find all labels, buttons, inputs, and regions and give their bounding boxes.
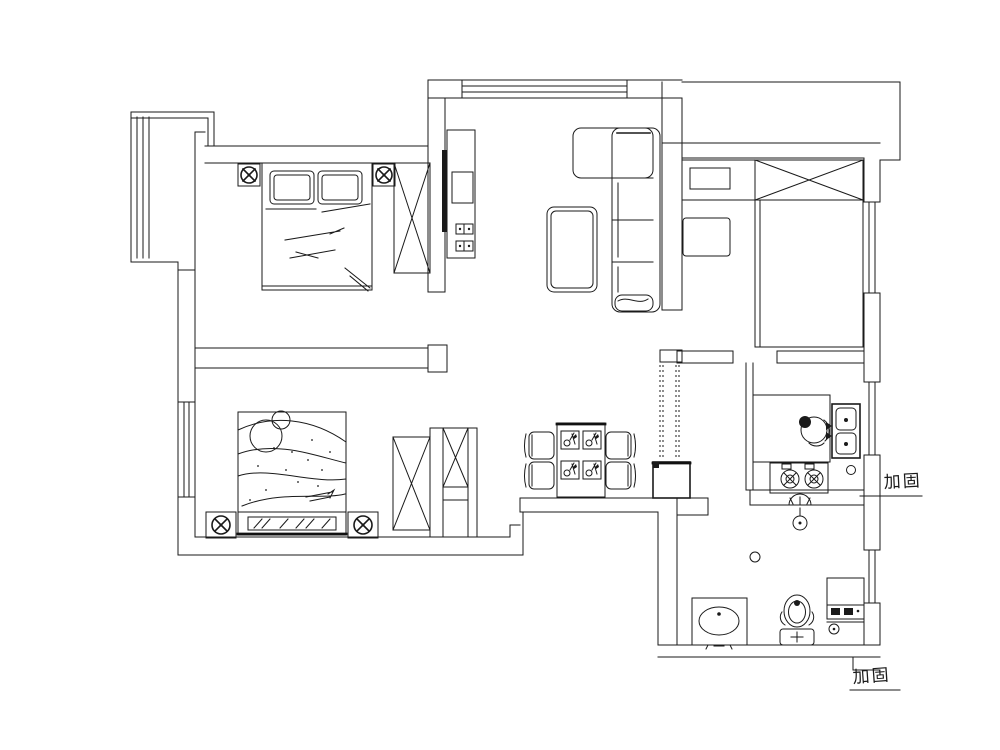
living-room — [442, 128, 660, 312]
column — [653, 462, 690, 498]
walls — [131, 80, 900, 670]
cabinet — [682, 160, 755, 200]
dining-chair — [525, 432, 555, 459]
headboard — [238, 512, 346, 535]
washing-machine — [827, 578, 864, 622]
dining-table — [557, 423, 605, 497]
shower-icon — [789, 494, 811, 530]
place-settings — [561, 431, 601, 479]
bay-window-master — [131, 112, 205, 270]
gas-stove — [770, 463, 828, 493]
wall-bedroom3-north — [662, 143, 880, 158]
master-bedroom — [238, 163, 430, 291]
floor-plan-page: { "drawing": { "type": "apartment-floor-… — [0, 0, 1000, 750]
wall-living-east — [662, 82, 682, 310]
wall-bath-south — [658, 645, 880, 657]
place-setting — [561, 461, 579, 479]
wall-niche-east — [443, 428, 477, 537]
wall-bottom — [178, 537, 523, 555]
place-setting — [583, 461, 601, 479]
wall-door-jamb — [428, 345, 447, 372]
lamp-icon — [354, 516, 372, 534]
washbasin — [692, 598, 747, 649]
wardrobe — [393, 437, 430, 530]
wardrobe — [394, 163, 430, 273]
pillow — [318, 171, 362, 204]
sofa-armrest — [615, 295, 653, 311]
toilet — [780, 595, 814, 645]
media-device — [456, 224, 473, 234]
removed-wall-dashes — [660, 365, 679, 460]
sofa — [573, 128, 660, 312]
wall-cap-dining — [660, 350, 682, 362]
bathroom — [692, 494, 864, 649]
wall-bath-north-stub — [677, 498, 708, 515]
bedspread-dots — [249, 439, 331, 501]
wardrobe — [755, 160, 863, 200]
window-bedroom3-east — [864, 202, 880, 293]
wall-kitchen-north-right — [777, 351, 864, 363]
window-kitchen-east — [864, 382, 880, 455]
gas-valve-icon — [847, 466, 856, 475]
window-bath-east — [864, 550, 880, 603]
bed — [238, 411, 346, 512]
lamp-icon — [241, 167, 257, 183]
sink — [826, 404, 860, 458]
wall-bath-west — [658, 498, 677, 645]
kitchen — [753, 395, 860, 493]
double-bed — [262, 163, 372, 291]
pillow — [270, 171, 314, 204]
wall-kitchen-west — [746, 363, 753, 490]
bedroom3 — [682, 160, 863, 347]
av-equipment — [452, 172, 473, 203]
floor-plan-drawing: 加固 加固 — [0, 0, 1000, 750]
media-device — [456, 241, 473, 251]
tv-cabinet — [442, 130, 475, 258]
dining-chair — [606, 462, 636, 489]
dining-chair — [606, 432, 636, 459]
window-living-north — [462, 80, 627, 98]
wall-niche-mid — [430, 428, 443, 537]
coffee-table — [547, 207, 597, 292]
wall-kitchen-south — [750, 490, 864, 505]
kettle-icon — [799, 416, 829, 446]
lamp-icon — [376, 167, 392, 183]
wall-left — [178, 262, 195, 555]
bed-platform — [755, 200, 863, 347]
floor-drain-icon — [750, 552, 760, 562]
wall-kitchen-north-left — [677, 351, 733, 363]
place-setting — [561, 431, 579, 449]
wall-between-bedrooms — [195, 348, 428, 368]
sofa-chaise — [573, 128, 653, 178]
wall-master-north — [205, 146, 428, 163]
dining-chair — [525, 462, 555, 489]
place-setting — [583, 431, 601, 449]
wall-right — [864, 158, 880, 645]
annotation-reinforce-kitchen: 加固 — [883, 471, 922, 493]
tv-icon — [442, 150, 447, 232]
annotation-reinforce-bath: 加固 — [852, 665, 891, 688]
window-bedroom2 — [178, 402, 195, 497]
wall-topright-outline — [682, 82, 900, 160]
bedroom2 — [206, 411, 468, 538]
wall-living-north — [428, 80, 682, 98]
lamp-icon — [212, 516, 230, 534]
dining-area — [525, 365, 691, 498]
side-table — [683, 218, 730, 256]
wardrobe — [443, 428, 468, 487]
wall-bottom-jog — [510, 512, 523, 555]
wall-dining-south — [520, 498, 677, 512]
kitchen-counter — [753, 395, 830, 462]
